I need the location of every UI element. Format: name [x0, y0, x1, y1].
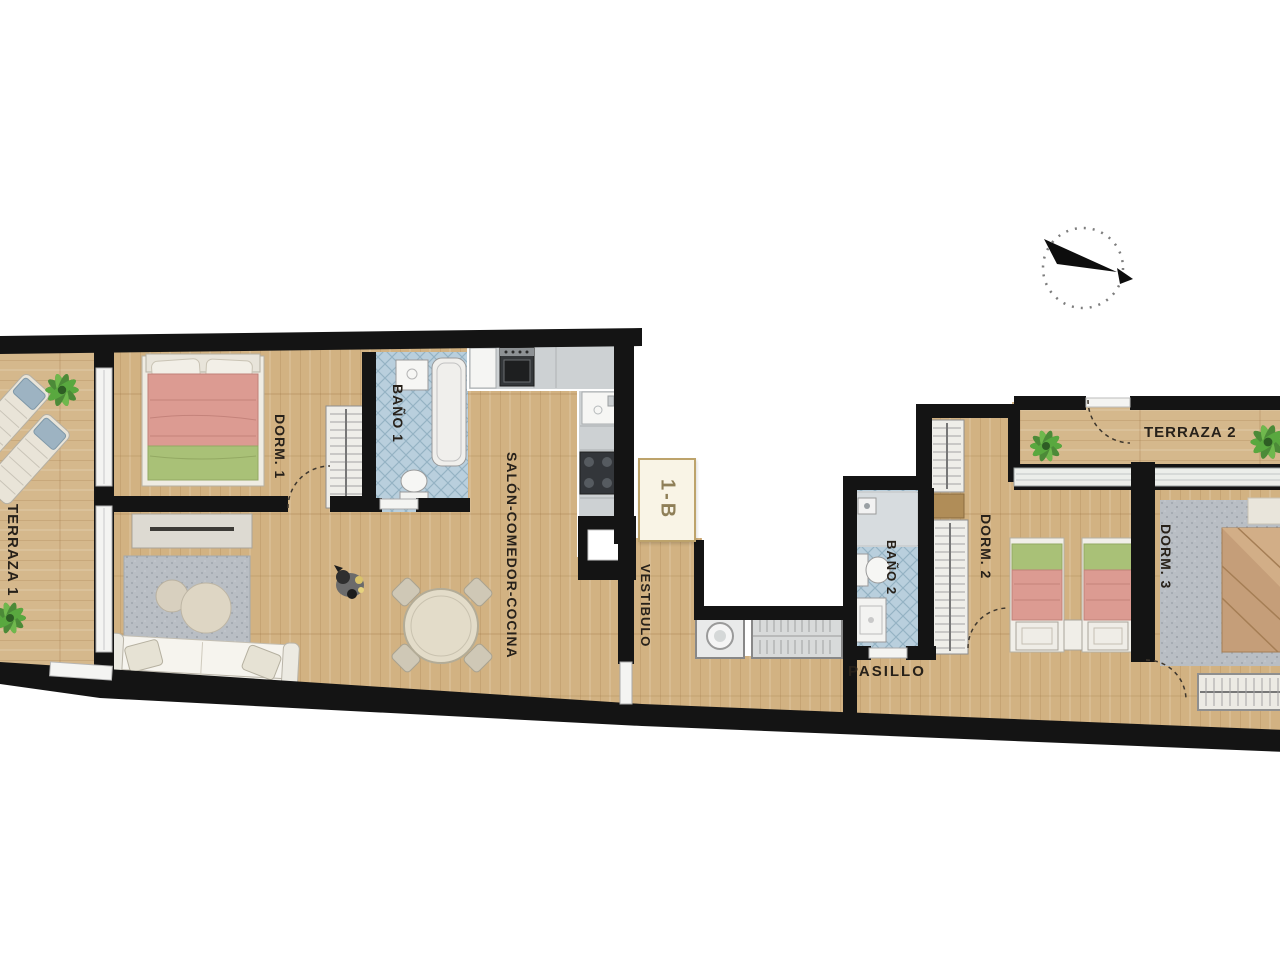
tv-console — [132, 514, 252, 548]
kitchen-sink — [582, 392, 616, 424]
floor-plan-canvas: TERRAZA 1 DORM. 1 BAÑO 1 SALÓN-COMEDOR-C… — [0, 0, 1280, 960]
right-wing-left-wall — [843, 476, 857, 726]
compass-north-icon — [1043, 228, 1133, 308]
dorm-1-wardrobe — [326, 406, 366, 508]
unit-badge: 1-B — [638, 458, 696, 542]
room-label-bano-2: BAÑO 2 — [884, 540, 899, 595]
bano-2-sink — [856, 598, 886, 642]
washing-machine — [696, 614, 744, 658]
dorm-3-wardrobe — [1198, 674, 1280, 710]
dorm-2-twin-bed — [1010, 538, 1064, 652]
unit-badge-label: 1-B — [656, 479, 679, 520]
dorm-2-twin-bed — [1082, 538, 1134, 652]
room-label-terraza-2: TERRAZA 2 — [1144, 424, 1237, 441]
kitchen-right-wall — [614, 330, 634, 544]
room-label-dorm-1: DORM. 1 — [272, 414, 288, 479]
room-label-bano-1: BAÑO 1 — [390, 384, 406, 443]
dorm-1-bed — [142, 354, 264, 486]
shower — [854, 492, 918, 546]
bano-2-door-leaf — [869, 648, 907, 658]
bano-1-door-leaf — [380, 499, 418, 509]
room-label-pasillo: PASILLO — [848, 663, 926, 680]
hob — [580, 452, 616, 494]
nightstand — [1064, 620, 1082, 650]
terraza-2-door-leaf — [1086, 398, 1130, 407]
dorm-divider-wall — [1131, 464, 1155, 662]
bano-2-right-wall — [918, 488, 934, 660]
room-label-terraza-1: TERRAZA 1 — [4, 504, 21, 597]
oven — [500, 348, 534, 386]
shelf-unit — [752, 614, 842, 658]
room-label-salon: SALÓN-COMEDOR-COCINA — [504, 452, 520, 659]
dining-set — [390, 576, 493, 673]
room-label-dorm-2: DORM. 2 — [978, 514, 994, 579]
fridge — [470, 348, 496, 388]
salon-door-leaf — [620, 662, 632, 704]
room-label-vestibulo: VESTIBULO — [638, 564, 653, 647]
pouf — [181, 583, 231, 633]
room-label-dorm-3: DORM. 3 — [1158, 524, 1174, 589]
